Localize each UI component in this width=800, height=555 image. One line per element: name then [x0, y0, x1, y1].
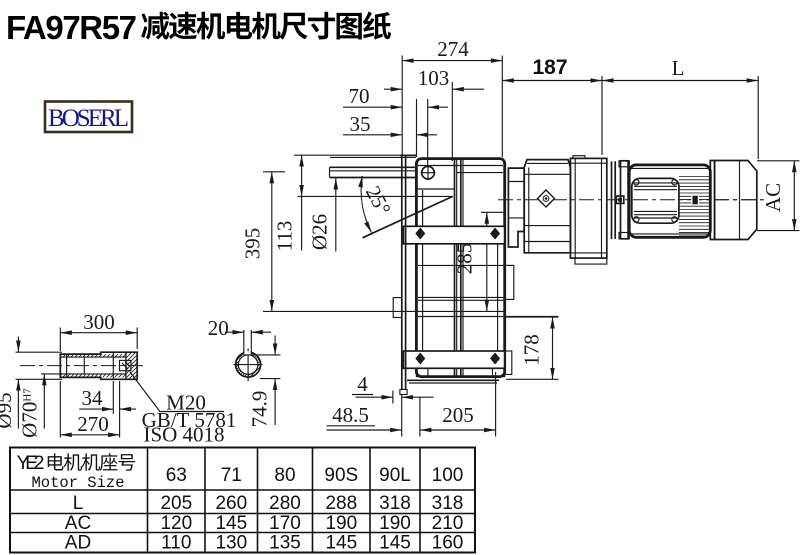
svg-text:90L: 90L — [379, 465, 411, 486]
svg-text:280: 280 — [269, 493, 301, 514]
svg-text:BOSERL: BOSERL — [48, 105, 129, 132]
svg-text:L: L — [73, 493, 84, 514]
svg-text:145: 145 — [215, 513, 247, 534]
svg-text:318: 318 — [379, 493, 411, 514]
svg-text:YE2: YE2 — [17, 452, 45, 474]
svg-text:71: 71 — [221, 465, 242, 486]
svg-text:187: 187 — [532, 56, 567, 79]
svg-text:288: 288 — [325, 493, 357, 514]
svg-text:178: 178 — [520, 334, 544, 366]
svg-text:35: 35 — [350, 112, 371, 136]
svg-text:285: 285 — [453, 243, 477, 275]
svg-text:FA97R57: FA97R57 — [6, 9, 137, 46]
svg-text:113: 113 — [273, 221, 297, 252]
svg-text:90S: 90S — [324, 465, 358, 486]
svg-text:AD: AD — [65, 533, 91, 554]
svg-text:274: 274 — [437, 37, 469, 61]
svg-text:74.9: 74.9 — [248, 391, 272, 428]
svg-text:20: 20 — [208, 316, 229, 340]
svg-text:110: 110 — [161, 533, 191, 554]
svg-text:205: 205 — [160, 493, 192, 514]
svg-text:Ø95: Ø95 — [0, 392, 16, 428]
svg-text:48.5: 48.5 — [332, 403, 369, 427]
svg-text:Ø26: Ø26 — [308, 214, 332, 250]
svg-text:135: 135 — [269, 533, 301, 554]
svg-text:260: 260 — [215, 493, 247, 514]
svg-text:AC: AC — [65, 513, 91, 534]
svg-text:270: 270 — [77, 412, 109, 436]
svg-text:4: 4 — [357, 372, 368, 396]
svg-text:205: 205 — [442, 403, 474, 427]
svg-text:ISO 4018: ISO 4018 — [143, 423, 224, 447]
svg-text:34: 34 — [82, 386, 104, 410]
svg-text:300: 300 — [83, 310, 115, 334]
svg-text:170: 170 — [269, 513, 301, 534]
svg-text:160: 160 — [432, 533, 464, 554]
svg-text:100: 100 — [432, 465, 464, 486]
svg-text:145: 145 — [325, 533, 357, 554]
svg-text:70: 70 — [349, 84, 370, 108]
svg-text:80: 80 — [274, 465, 295, 486]
svg-text:63: 63 — [166, 465, 187, 486]
svg-text:120: 120 — [160, 513, 192, 534]
svg-text:190: 190 — [379, 513, 411, 534]
svg-text:Motor Size: Motor Size — [31, 474, 124, 492]
svg-text:AC: AC — [761, 183, 785, 212]
svg-text:190: 190 — [325, 513, 357, 534]
svg-text:210: 210 — [432, 513, 464, 534]
svg-text:145: 145 — [379, 533, 411, 554]
svg-text:395: 395 — [241, 228, 265, 260]
svg-text:L: L — [672, 56, 685, 80]
svg-text:318: 318 — [432, 493, 464, 514]
svg-text:130: 130 — [215, 533, 247, 554]
svg-text:103: 103 — [418, 66, 450, 90]
